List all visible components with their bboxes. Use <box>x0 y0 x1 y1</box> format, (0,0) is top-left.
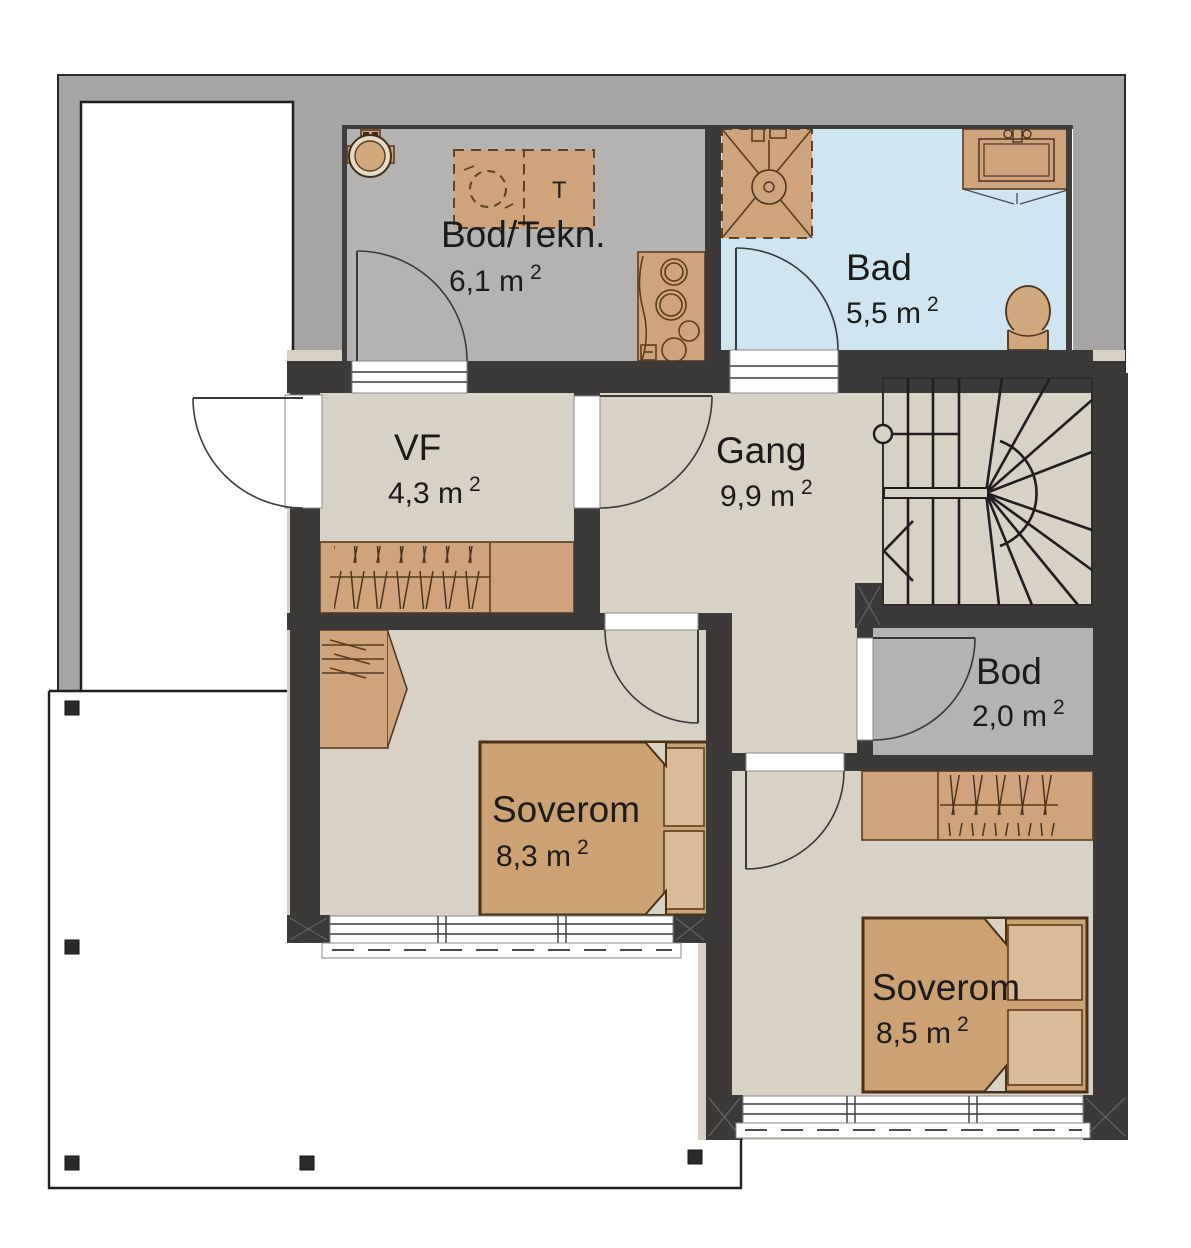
wardrobe-icon <box>862 771 1093 840</box>
room-area-sup: 2 <box>801 476 813 499</box>
terrace-post <box>65 1156 79 1170</box>
terrace-post <box>688 1150 702 1164</box>
terrace-post <box>65 940 79 954</box>
room-label-bod: Bod <box>976 651 1042 692</box>
laundry-sink-icon <box>638 252 705 362</box>
room-area-sup: 2 <box>469 473 481 496</box>
toilet-icon <box>1006 286 1050 350</box>
room-area-sup: 2 <box>927 293 939 316</box>
terrace-post <box>65 701 79 715</box>
room-label-bod-tekn: Bod/Tekn. <box>441 214 606 255</box>
room-area-bod-tekn: 6,1 m <box>449 265 524 298</box>
room-label-soverom-2: Soverom <box>872 967 1020 1008</box>
room-area-bad: 5,5 m <box>846 297 921 330</box>
room-area-vf: 4,3 m <box>388 477 463 510</box>
shower-icon <box>722 129 812 238</box>
floor-plan-page: T <box>0 0 1191 1248</box>
room-label-vf: VF <box>394 427 441 468</box>
room-area-soverom-1: 8,3 m <box>496 840 571 873</box>
shelf-wardrobe-icon <box>318 630 407 748</box>
wardrobe-icon <box>320 542 574 613</box>
room-area-soverom-2: 8,5 m <box>876 1017 951 1050</box>
room-area-sup: 2 <box>530 261 542 284</box>
room-area-sup: 2 <box>957 1013 969 1036</box>
soverom-1-window <box>322 916 681 958</box>
room-label-soverom-1: Soverom <box>492 789 640 830</box>
soverom-2-window <box>736 1096 1090 1138</box>
room-label-bad: Bad <box>846 247 912 288</box>
room-area-gang: 9,9 m <box>720 480 795 513</box>
room-label-gang: Gang <box>716 430 807 471</box>
room-area-sup: 2 <box>1053 696 1065 719</box>
terrace-post <box>300 1156 314 1170</box>
room-area-bod: 2,0 m <box>972 700 1047 733</box>
floor-plan-drawing: T <box>0 0 1191 1248</box>
stair-start-marker <box>874 425 892 443</box>
room-area-sup: 2 <box>577 836 589 859</box>
dryer-label: T <box>552 177 567 204</box>
carport-area <box>81 102 293 691</box>
